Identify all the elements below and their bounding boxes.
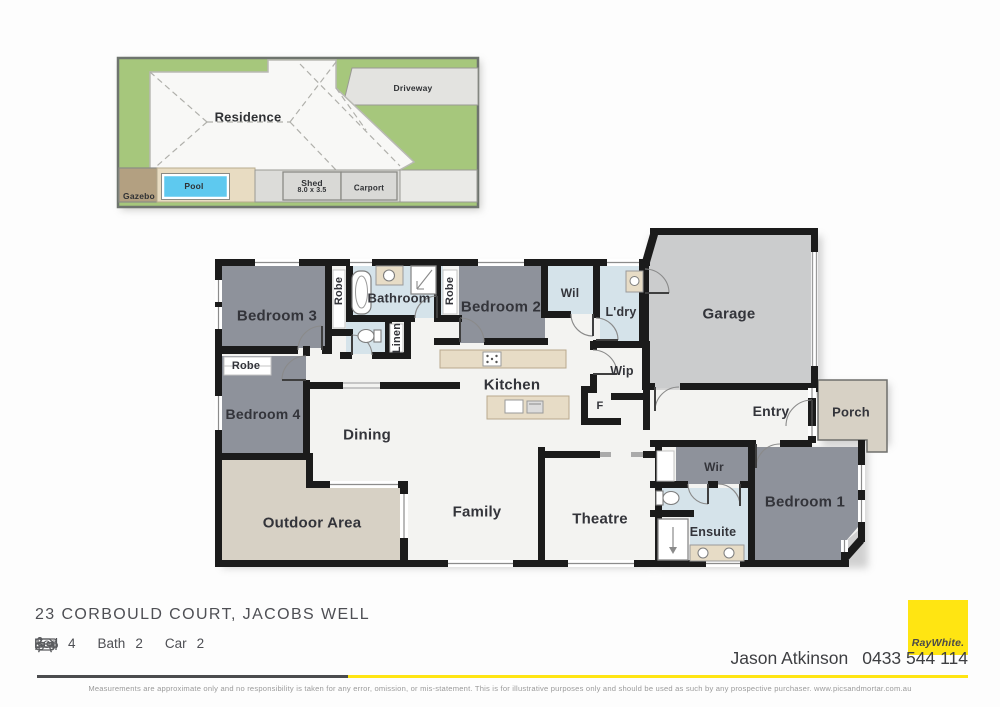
label-robe-bed3: Robe bbox=[333, 277, 345, 305]
bath-label: Bath bbox=[98, 636, 126, 651]
car-icon bbox=[34, 636, 59, 651]
label-residence: Residence bbox=[215, 110, 282, 125]
wir-shelf bbox=[657, 451, 674, 481]
label-shed: Shed8.0 x 3.5 bbox=[297, 178, 326, 194]
label-ldry: L'dry bbox=[605, 305, 636, 319]
label-family: Family bbox=[453, 504, 502, 521]
agent-name: Jason Atkinson bbox=[731, 648, 849, 668]
dishwasher bbox=[527, 401, 543, 413]
label-pool: Pool bbox=[184, 181, 203, 191]
dining-opening bbox=[343, 382, 380, 389]
property-address: 23 CORBOULD COURT, JACOBS WELL bbox=[35, 606, 370, 624]
island-sink bbox=[505, 400, 523, 413]
label-bathroom: Bathroom bbox=[368, 291, 431, 306]
label-kitchen: Kitchen bbox=[484, 377, 540, 394]
label-fridge: F bbox=[597, 400, 604, 412]
ensuite-toilet bbox=[663, 492, 679, 505]
car-count: 2 bbox=[197, 636, 205, 651]
bed-count: 4 bbox=[68, 636, 76, 651]
label-wir: Wir bbox=[704, 460, 724, 474]
bathroom-sink bbox=[384, 270, 395, 281]
divider-dark-segment bbox=[37, 675, 348, 678]
label-gazebo: Gazebo bbox=[123, 191, 155, 201]
label-dining: Dining bbox=[343, 427, 391, 444]
toilet bbox=[358, 330, 374, 343]
footer-divider bbox=[37, 675, 968, 678]
feature-bath: Bath 2 bbox=[98, 636, 143, 651]
plan-drawing bbox=[0, 0, 1000, 707]
feature-car: Car 2 bbox=[165, 636, 204, 651]
floorplan-page: Residence Driveway Gazebo Pool Shed8.0 x… bbox=[0, 0, 1000, 707]
label-wil: Wil bbox=[561, 286, 580, 300]
agent-contact: Jason Atkinson0433 544 114 bbox=[731, 648, 968, 669]
disclaimer-text: Measurements are approximate only and no… bbox=[0, 684, 1000, 693]
label-bedroom1: Bedroom 1 bbox=[765, 494, 845, 511]
label-wip: Wip bbox=[610, 364, 633, 378]
car-label: Car bbox=[165, 636, 187, 651]
label-carport: Carport bbox=[354, 184, 384, 193]
label-ensuite: Ensuite bbox=[690, 525, 737, 539]
label-entry: Entry bbox=[753, 403, 790, 419]
label-outdoor: Outdoor Area bbox=[263, 515, 362, 532]
label-bedroom4: Bedroom 4 bbox=[226, 406, 301, 422]
divider-yellow-segment bbox=[348, 675, 968, 678]
label-linen: Linen bbox=[391, 323, 403, 353]
label-porch: Porch bbox=[832, 405, 870, 420]
raywhite-logo: RayWhite. bbox=[908, 600, 968, 655]
label-robe-bed2: Robe bbox=[444, 277, 456, 305]
label-robe-bed4: Robe bbox=[232, 360, 260, 372]
label-bedroom2: Bedroom 2 bbox=[461, 299, 541, 316]
label-theatre: Theatre bbox=[572, 511, 628, 528]
label-driveway: Driveway bbox=[394, 83, 433, 93]
bath-count: 2 bbox=[135, 636, 143, 651]
label-bedroom3: Bedroom 3 bbox=[237, 308, 317, 325]
garage-door bbox=[811, 252, 818, 366]
property-features: Bed 4 Bath 2 Car 2 bbox=[34, 636, 204, 651]
label-garage: Garage bbox=[703, 306, 756, 323]
label-shed-size: 8.0 x 3.5 bbox=[297, 187, 326, 194]
agent-phone: 0433 544 114 bbox=[862, 648, 968, 668]
